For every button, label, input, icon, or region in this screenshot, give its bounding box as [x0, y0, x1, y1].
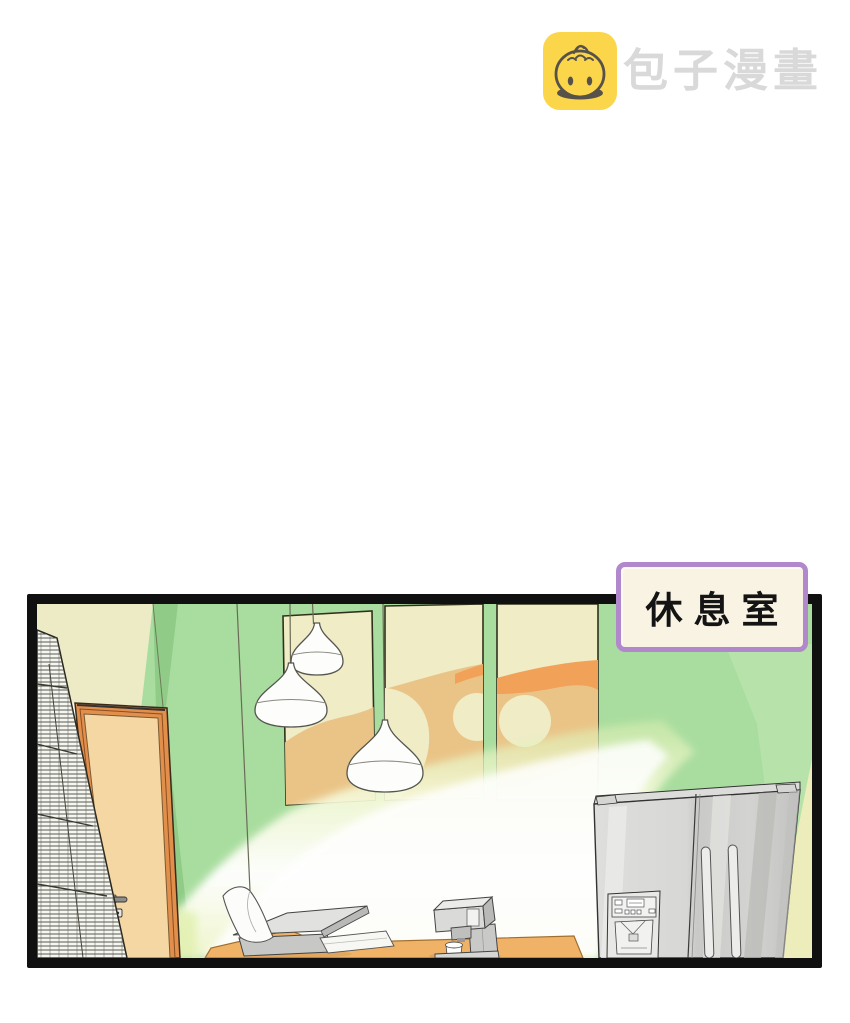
brand-name: 包子漫畫: [623, 44, 823, 98]
baozi-bun-icon: [543, 32, 617, 110]
breakroom-scene-illustration: [37, 604, 812, 958]
ice-water-dispenser: [607, 891, 660, 958]
refrigerator: [594, 782, 800, 958]
panel-caption-text: 休息室: [635, 580, 790, 634]
manga-page: 包子漫畫 休息室: [0, 0, 850, 1023]
panel-caption-box: 休息室: [616, 562, 808, 652]
